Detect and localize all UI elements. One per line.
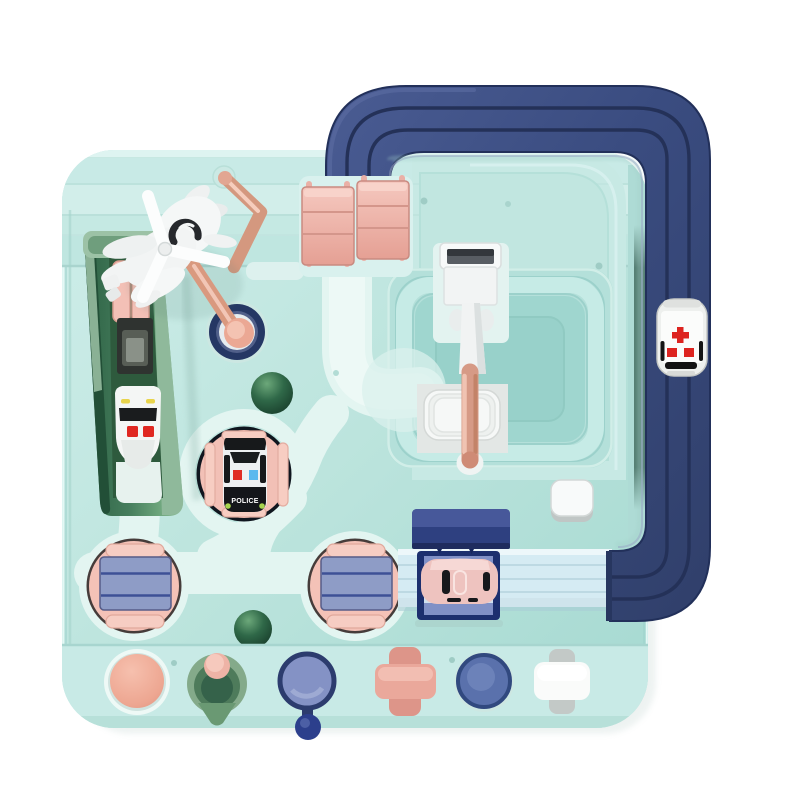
svg-text:POLICE: POLICE <box>231 498 258 505</box>
